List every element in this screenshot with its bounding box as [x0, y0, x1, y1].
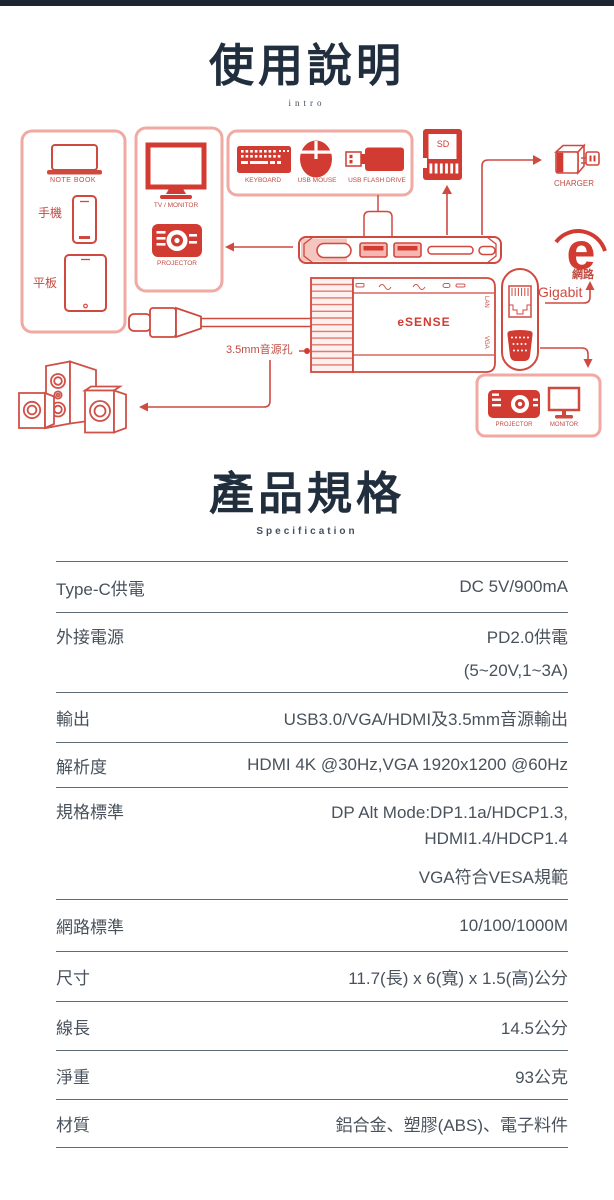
table-row: 尺寸 11.7(長) x 6(寬) x 1.5(高)公分 — [56, 951, 568, 1001]
spec-value: 鋁合金、塑膠(ABS)、電子料件 — [336, 1111, 568, 1136]
usb-c-plug-icon — [129, 308, 312, 337]
output-projector-icon — [488, 390, 540, 418]
audio-jack-label: 3.5mm音源孔 — [226, 345, 293, 356]
spec-value: 10/100/1000M — [459, 916, 568, 936]
spec-value: 14.5公分 — [501, 1014, 568, 1039]
sd-label: SD — [437, 140, 450, 149]
connection-diagram: e — [0, 0, 614, 470]
phone-label: 手機 — [38, 207, 62, 219]
arrow-to-charger — [482, 155, 542, 235]
table-row: Type-C供電 DC 5V/900mA — [56, 561, 568, 612]
sd-card-icon — [423, 129, 462, 180]
tablet-label: 平板 — [33, 277, 57, 289]
spec-title: 產品規格 — [0, 470, 614, 517]
table-row: 網路標準 10/100/1000M — [56, 899, 568, 951]
arrow-to-displays — [225, 243, 293, 252]
hub-port-capsule — [502, 269, 538, 370]
spec-subtitle: Specification — [0, 526, 614, 537]
spec-label: 尺寸 — [56, 964, 90, 989]
spec-label: Type-C供電 — [56, 575, 145, 600]
table-row: 淨重 93公克 — [56, 1050, 568, 1099]
keyboard-icon — [237, 146, 291, 173]
spec-label: 線長 — [56, 1014, 90, 1039]
table-row: 外接電源 PD2.0供電 (5~20V,1~3A) — [56, 612, 568, 692]
table-row: 輸出 USB3.0/VGA/HDMI及3.5mm音源輸出 — [56, 692, 568, 742]
keyboard-label: KEYBOARD — [245, 178, 281, 185]
notebook-label: NOTE BOOK — [50, 177, 96, 184]
charger-icon — [556, 146, 599, 174]
spec-label: 網路標準 — [56, 913, 124, 938]
product-info-page: 使用說明 intro — [0, 0, 614, 1200]
vga-port-label: VGA — [483, 336, 489, 349]
spec-value: 93公克 — [515, 1063, 568, 1088]
spec-label: 淨重 — [56, 1063, 90, 1088]
table-row: 材質 鋁合金、塑膠(ABS)、電子料件 — [56, 1099, 568, 1147]
lan-port-label: LAN — [483, 296, 489, 308]
usb-flash-drive-label: USB FLASH DRIVE — [348, 178, 406, 185]
network-label: 網路 — [572, 270, 594, 281]
arrow-to-sd — [442, 185, 452, 235]
output-projector-label: PROJECTOR — [496, 422, 533, 428]
table-row: 線長 14.5公分 — [56, 1001, 568, 1050]
usb-connector-bracket — [364, 195, 392, 237]
spec-label: 輸出 — [56, 705, 90, 730]
vga-port-icon — [507, 330, 532, 361]
tv-monitor-label: TV / MONITOR — [154, 203, 198, 210]
spec-value: USB3.0/VGA/HDMI及3.5mm音源輸出 — [284, 705, 568, 730]
arrow-vga-down — [540, 348, 593, 368]
gigabit-label: Gigabit — [538, 285, 582, 299]
projector-label: PROJECTOR — [157, 261, 197, 268]
projector-icon — [152, 224, 202, 257]
spec-label: 材質 — [56, 1111, 90, 1136]
charger-label: CHARGER — [554, 180, 594, 188]
spec-value: DP Alt Mode:DP1.1a/HDCP1.3, HDMI1.4/HDCP… — [331, 800, 568, 891]
speakers-icon — [19, 362, 126, 433]
output-monitor-label: MONITOR — [550, 422, 578, 428]
diagram-artwork: e — [0, 0, 614, 470]
spec-label: 規格標準 — [56, 800, 124, 826]
spec-value: PD2.0供電 (5~20V,1~3A) — [464, 625, 568, 684]
spec-label: 外接電源 — [56, 625, 124, 651]
spec-label: 解析度 — [56, 753, 107, 778]
hub-side-view-icon — [299, 237, 501, 263]
table-row: 解析度 HDMI 4K @30Hz,VGA 1920x1200 @60Hz — [56, 742, 568, 787]
spec-value: HDMI 4K @30Hz,VGA 1920x1200 @60Hz — [247, 755, 568, 775]
table-row: 規格標準 DP Alt Mode:DP1.1a/HDCP1.3, HDMI1.4… — [56, 787, 568, 899]
spec-value: DC 5V/900mA — [459, 577, 568, 597]
spec-value: 11.7(長) x 6(寬) x 1.5(高)公分 — [348, 964, 568, 989]
arrow-to-speakers — [139, 348, 310, 412]
usb-mouse-label: USB MOUSE — [297, 178, 336, 185]
spec-table: Type-C供電 DC 5V/900mA 外接電源 PD2.0供電 (5~20V… — [56, 561, 568, 1148]
mouse-icon — [300, 141, 332, 178]
hub-brand-label: eSENSE — [397, 316, 450, 328]
